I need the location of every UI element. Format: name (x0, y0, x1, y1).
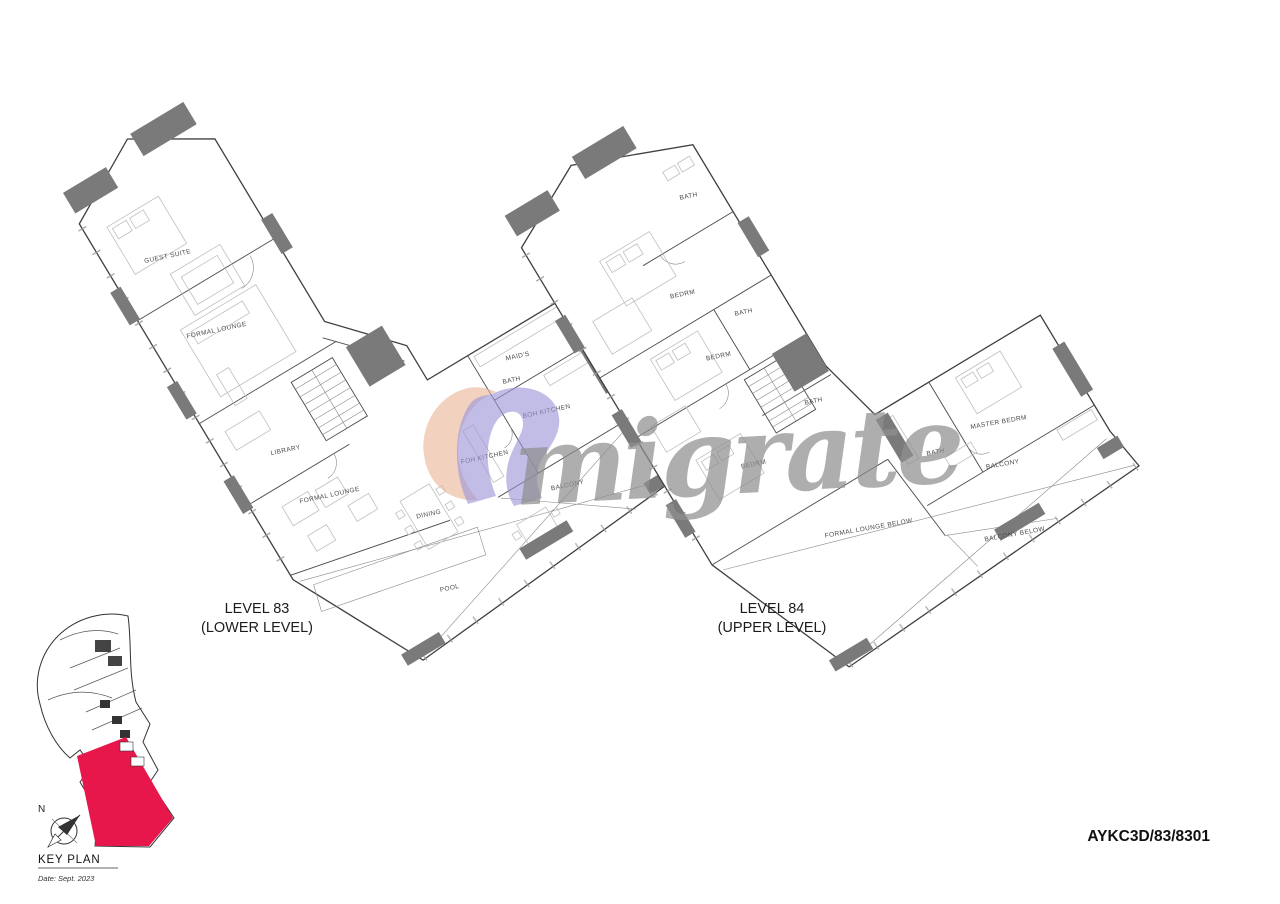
title-reference: AYKC3D/83/8301 (1087, 828, 1210, 845)
level-84-title: LEVEL 84 (740, 601, 805, 617)
drawing-number: AYKC3D/83/8301 (1087, 828, 1210, 845)
level-83-subtitle: (LOWER LEVEL) (201, 620, 313, 636)
key-plan-highlight (77, 737, 173, 846)
key-plan-title: KEY PLAN (38, 854, 100, 866)
plan-outline (498, 0, 1151, 700)
sheet-svg: GUEST SUITE FORMAL LOUNGE LIBRARY FORMAL… (0, 0, 1280, 904)
level-84-subtitle: (UPPER LEVEL) (718, 620, 827, 636)
key-plan-date: Date: Sept. 2023 (38, 874, 95, 883)
drawing-sheet: GUEST SUITE FORMAL LOUNGE LIBRARY FORMAL… (0, 0, 1280, 904)
watermark-text: migrate (510, 382, 965, 531)
north-label: N (38, 804, 45, 815)
north-arrow: N (38, 804, 80, 847)
level-83-title: LEVEL 83 (225, 601, 290, 617)
plan-titles: LEVEL 83 (LOWER LEVEL) LEVEL 84 (UPPER L… (201, 601, 826, 636)
plan-level-84 (487, 0, 1151, 705)
